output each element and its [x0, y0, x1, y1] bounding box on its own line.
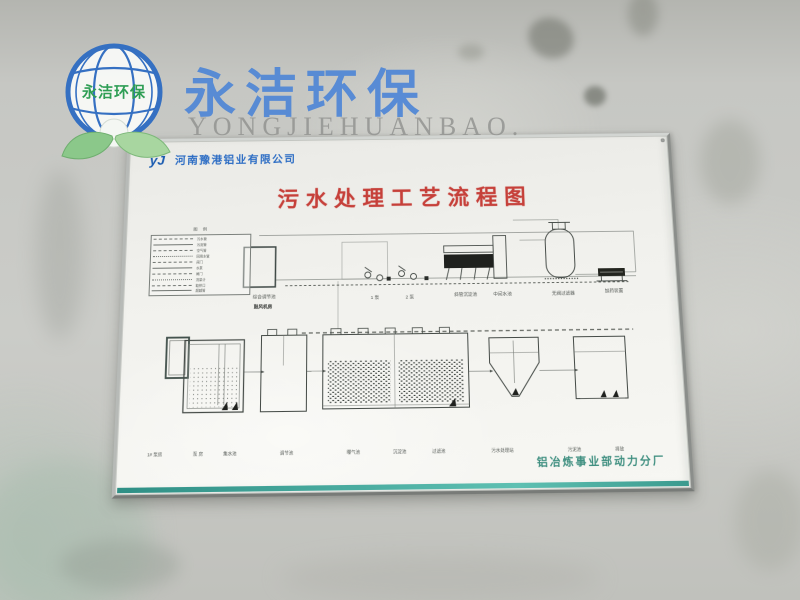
wall-stain	[700, 120, 760, 204]
wall-stain	[36, 170, 84, 340]
legend-line-symbol	[152, 279, 192, 280]
legend-title: 图 例	[166, 226, 236, 233]
legend-label: 流量计	[196, 277, 206, 282]
svg-text:永洁环保: 永洁环保	[81, 83, 146, 101]
photo-of-wall: { "watermark": { "brand_cn": "永洁环保", "br…	[0, 0, 800, 600]
equipment-label-blower: 鼓风机房	[238, 303, 288, 310]
legend-line-symbol	[152, 284, 192, 285]
equipment-label-mid-tank: 中间水池	[477, 291, 527, 298]
equipment-label-pump2: 2 泵	[385, 294, 435, 301]
frame-screw-icon	[661, 138, 665, 142]
legend-label: 水泵	[196, 265, 203, 270]
wall-stain	[60, 540, 180, 590]
wall-stain	[458, 44, 484, 60]
tank-label: 过滤池	[416, 448, 461, 455]
legend-line-symbol	[152, 273, 192, 274]
equipment-label-dosing: 加药装置	[589, 287, 639, 294]
tank-label: 污泥池	[552, 446, 597, 453]
legend-row: 超越管	[152, 287, 248, 294]
legend-table: 污水管 污泥管 空气管 回用水管 阀门	[148, 234, 251, 296]
wall-stain	[523, 11, 580, 64]
tank-label: 沉淀池	[377, 448, 422, 455]
legend-label: 阀门	[196, 259, 203, 264]
wall-stain	[584, 86, 606, 106]
tank-label: 集水池	[207, 450, 252, 457]
flow-diagram: 图 例 污水管 污泥管 空气管	[125, 214, 664, 476]
legend-line-symbol	[154, 239, 193, 240]
wall-stain	[628, 0, 658, 36]
legend-line-symbol	[153, 261, 193, 262]
tank-label: 曝气池	[331, 449, 376, 456]
legend-label: 污水管	[197, 237, 207, 242]
wall-stain	[735, 470, 800, 570]
equipment-label-tank: 综合调节池	[239, 294, 289, 301]
legend-line-symbol	[153, 267, 193, 268]
plant-caption: 铝冶炼事业部动力分厂	[537, 453, 667, 470]
tank-label: 污水处理站	[480, 447, 525, 454]
legend-line-symbol	[153, 250, 193, 251]
company-name: 河南豫港铝业有限公司	[175, 151, 297, 167]
tank-label: 1# 泵房	[132, 451, 177, 458]
tank-label: 调节池	[264, 450, 309, 457]
wall-stain	[280, 555, 600, 600]
equipment-label-filter: 无阀过滤器	[538, 290, 588, 297]
poster-bottom-band	[117, 481, 689, 493]
poster: yJ 河南豫港铝业有限公司 污水处理工艺流程图	[115, 136, 691, 496]
legend-label: 超越管	[195, 288, 205, 293]
page-title: 污水处理工艺流程图	[277, 180, 533, 213]
legend-label: 空气管	[197, 248, 207, 253]
poster-board-frame: yJ 河南豫港铝业有限公司 污水处理工艺流程图	[112, 133, 695, 499]
legend-panel: 图 例 污水管 污泥管 空气管	[148, 224, 251, 296]
globe-leaves-logo-icon: 永洁环保	[56, 40, 176, 170]
legend-label: 闸门	[196, 271, 203, 276]
legend-label: 回用水管	[196, 254, 209, 259]
watermark-brand-en: YONGJIEHUANBAO.	[188, 112, 524, 142]
legend-label: 取样口	[196, 282, 206, 287]
legend-line-symbol	[152, 290, 192, 291]
legend-line-symbol	[153, 256, 193, 257]
legend-label: 污泥管	[197, 242, 207, 247]
legend-line-symbol	[153, 244, 193, 245]
tank-label: 排放	[597, 445, 642, 452]
